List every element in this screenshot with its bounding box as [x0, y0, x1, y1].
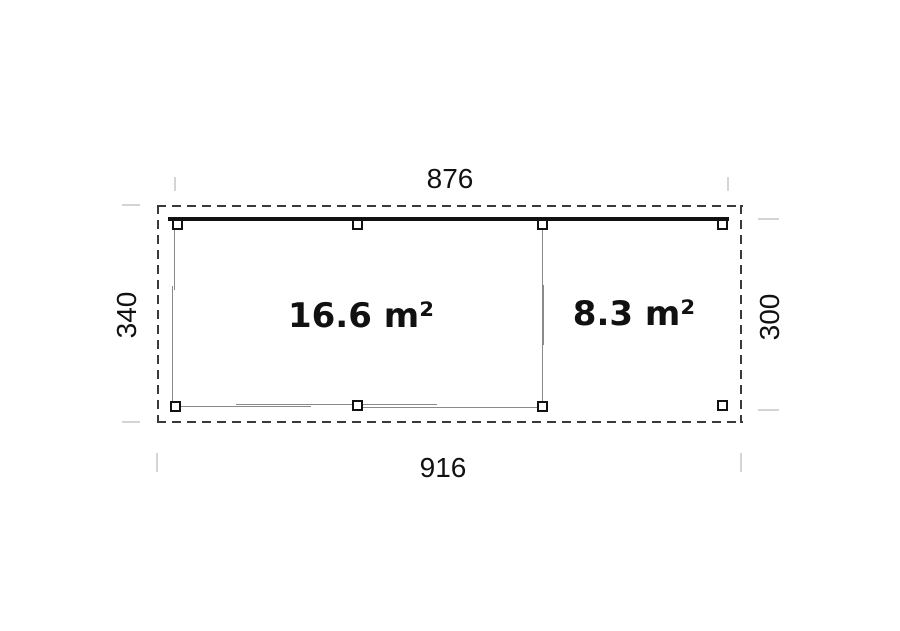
dimension-depth-left: 340	[113, 265, 141, 365]
floor-plan-canvas: 876 916 340 300 16.6 m² 8.3 m²	[0, 0, 900, 631]
post-bottom-left	[170, 401, 181, 412]
area-label-room2: 8.3 m²	[534, 292, 734, 336]
outline-edge-bottom	[157, 421, 743, 423]
post-top-divider	[537, 219, 548, 230]
area-label-room1: 16.6 m²	[261, 294, 461, 338]
ext-tick-left-bottom-h	[122, 421, 140, 423]
roof-beam	[168, 217, 729, 221]
post-bottom-right	[717, 400, 728, 411]
wall-left-upper	[174, 230, 175, 290]
ext-tick-bottom-right-v	[740, 453, 742, 472]
wall-bottom-seg1	[181, 406, 311, 407]
wall-bottom-seg3	[360, 407, 538, 408]
ext-tick-right-top-h	[758, 218, 779, 220]
dimension-width-bottom: 916	[393, 454, 493, 482]
post-top-mid	[352, 219, 363, 230]
post-top-right	[717, 219, 728, 230]
outline-edge-left	[157, 205, 159, 423]
post-bottom-divider	[537, 401, 548, 412]
ext-tick-right-bottom-h	[758, 409, 779, 411]
ext-tick-bottom-left-v	[156, 453, 158, 472]
post-bottom-mid	[352, 400, 363, 411]
wall-bottom-seg2	[236, 404, 437, 405]
ext-tick-top-right-v	[727, 177, 729, 191]
dimension-width-top: 876	[400, 165, 500, 193]
ext-tick-top-left-v	[174, 177, 176, 191]
ext-tick-left-top-h	[122, 204, 140, 206]
dimension-depth-right: 300	[756, 267, 784, 367]
outline-edge-top	[157, 205, 743, 207]
wall-left-lower	[172, 286, 173, 403]
outline-edge-right	[740, 205, 742, 423]
post-top-left	[172, 219, 183, 230]
